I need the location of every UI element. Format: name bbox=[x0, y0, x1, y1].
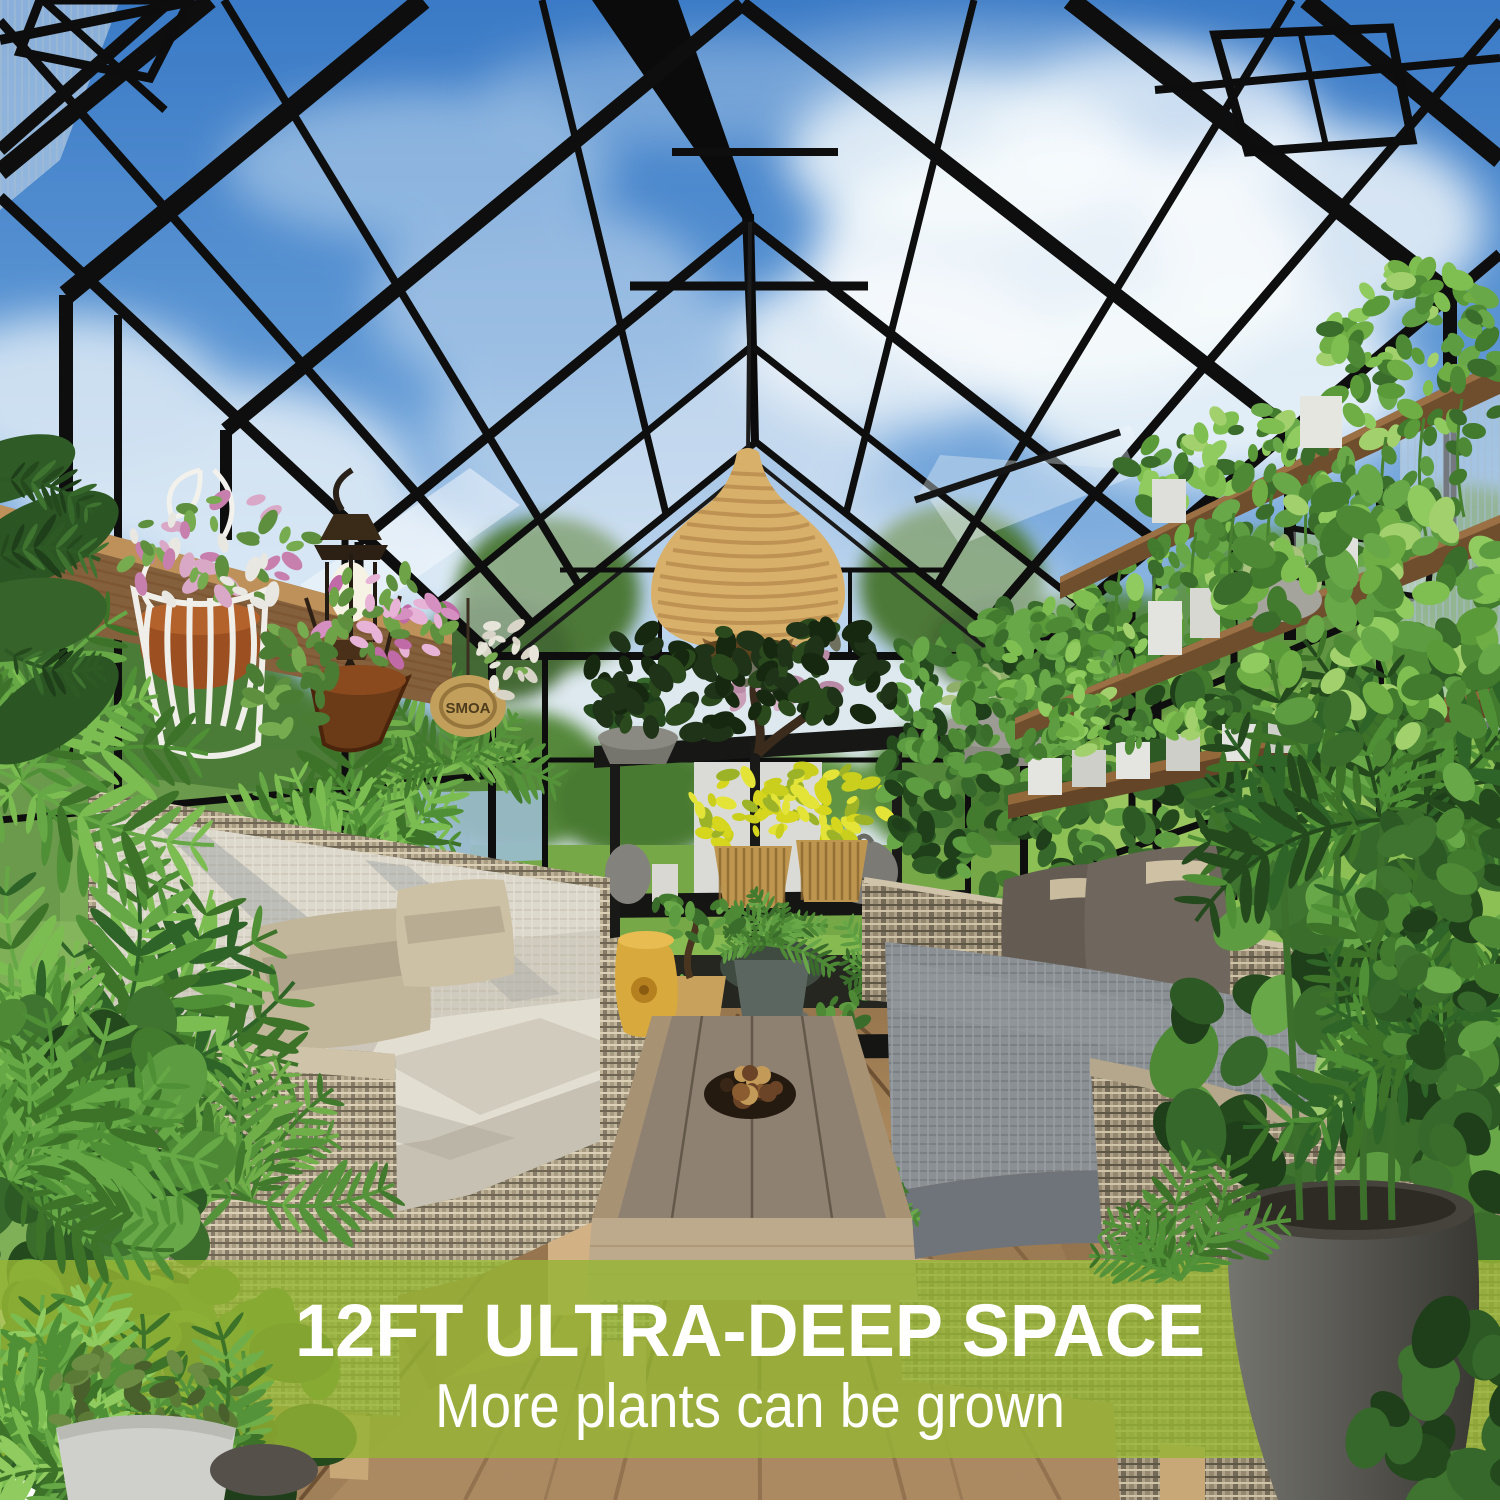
svg-text:12FT ULTRA-DEEP SPACE: 12FT ULTRA-DEEP SPACE bbox=[295, 1289, 1205, 1372]
svg-text:More plants can be grown: More plants can be grown bbox=[435, 1372, 1065, 1441]
svg-text:SMOA: SMOA bbox=[446, 700, 491, 717]
